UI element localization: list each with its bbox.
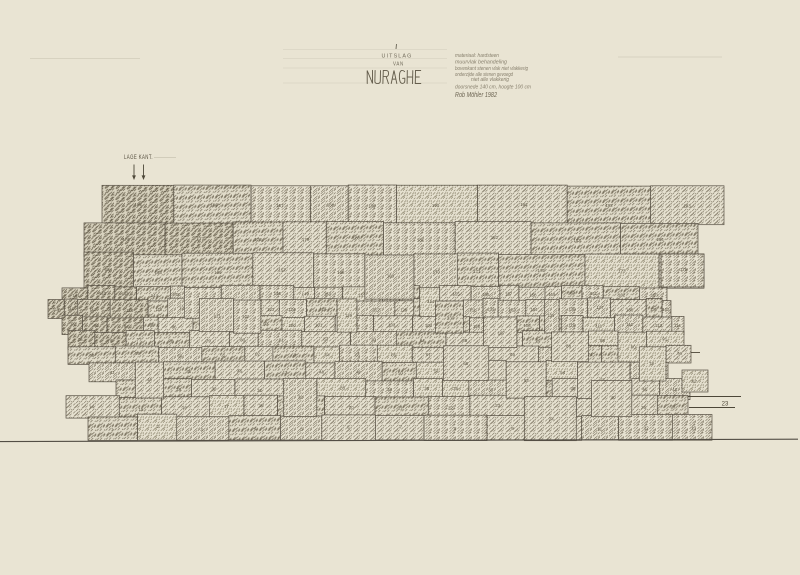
svg-text:83: 83 [371, 338, 376, 343]
svg-text:150: 150 [324, 292, 332, 297]
svg-text:65: 65 [355, 352, 360, 357]
svg-text:89: 89 [600, 338, 605, 343]
svg-text:82: 82 [323, 337, 328, 342]
svg-text:67: 67 [426, 352, 431, 357]
svg-text:75: 75 [78, 337, 83, 342]
svg-text:115: 115 [53, 307, 60, 312]
svg-text:60: 60 [177, 354, 182, 359]
svg-text:144: 144 [151, 293, 159, 298]
svg-text:166: 166 [214, 270, 222, 275]
svg-text:101: 101 [315, 322, 323, 327]
svg-text:104: 104 [425, 323, 433, 328]
svg-text:niet alle vlakkerig: niet alle vlakkerig [471, 77, 509, 83]
svg-text:113: 113 [655, 323, 663, 328]
svg-text:170: 170 [433, 270, 441, 275]
svg-text:15: 15 [139, 407, 144, 412]
svg-text:182: 182 [491, 235, 499, 240]
svg-text:76: 76 [108, 338, 113, 343]
svg-text:172: 172 [538, 268, 546, 273]
svg-text:16: 16 [182, 405, 187, 410]
svg-text:168: 168 [337, 270, 345, 275]
svg-text:173: 173 [618, 269, 626, 274]
svg-text:36: 36 [453, 386, 458, 391]
svg-text:116: 116 [67, 306, 74, 311]
svg-text:90: 90 [631, 345, 636, 350]
svg-text:126: 126 [345, 313, 353, 318]
svg-text:30: 30 [212, 387, 217, 392]
svg-text:185: 185 [134, 202, 142, 207]
svg-text:161: 161 [590, 291, 598, 296]
svg-text:73: 73 [649, 361, 654, 366]
svg-text:130: 130 [447, 315, 455, 320]
svg-text:31: 31 [257, 388, 262, 393]
svg-text:74: 74 [677, 351, 682, 356]
svg-text:156: 156 [482, 292, 490, 297]
svg-text:32: 32 [298, 394, 303, 399]
svg-text:183: 183 [573, 238, 581, 243]
svg-text:106: 106 [473, 324, 481, 329]
svg-text:doorsnede 140 cm, hoogte 100 c: doorsnede 140 cm, hoogte 100 cm [455, 85, 532, 91]
svg-text:103: 103 [388, 323, 396, 328]
svg-text:142: 142 [99, 291, 107, 296]
svg-text:131: 131 [469, 308, 477, 313]
svg-text:136: 136 [568, 307, 576, 312]
svg-text:Rob Möhler 1982: Rob Möhler 1982 [455, 92, 497, 99]
svg-text:47: 47 [282, 370, 287, 375]
svg-text:63: 63 [291, 353, 296, 358]
svg-text:77: 77 [137, 338, 142, 343]
svg-text:23: 23 [495, 403, 500, 408]
svg-text:68: 68 [463, 361, 468, 366]
svg-text:66: 66 [391, 352, 396, 357]
svg-text:53: 53 [524, 378, 529, 383]
svg-text:187: 187 [276, 203, 284, 208]
svg-text:26: 26 [641, 405, 646, 410]
svg-text:50: 50 [398, 370, 403, 375]
svg-text:64: 64 [325, 353, 330, 358]
svg-text:muurvlak behandeling: muurvlak behandeling [455, 60, 507, 66]
svg-text:165: 165 [155, 270, 163, 275]
svg-text:UITSLAG: UITSLAG [382, 54, 413, 60]
svg-text:44: 44 [147, 377, 152, 382]
svg-text:14: 14 [89, 405, 94, 410]
svg-text:13: 13 [691, 426, 696, 431]
svg-text:160: 160 [568, 291, 576, 296]
svg-text:180: 180 [353, 235, 361, 240]
svg-text:176: 176 [122, 237, 130, 242]
svg-text:80: 80 [240, 337, 245, 342]
svg-text:163: 163 [651, 293, 659, 298]
svg-text:12: 12 [644, 425, 649, 430]
svg-text:169: 169 [387, 274, 395, 279]
svg-text:23: 23 [722, 402, 729, 408]
svg-text:81: 81 [279, 338, 284, 343]
svg-text:96: 96 [172, 324, 177, 329]
svg-text:114: 114 [674, 323, 681, 328]
svg-text:158: 158 [529, 293, 537, 298]
svg-text:155: 155 [452, 292, 460, 297]
svg-text:62: 62 [255, 351, 260, 356]
svg-text:164: 164 [105, 267, 113, 272]
svg-text:127: 127 [373, 307, 381, 312]
svg-text:145: 145 [173, 292, 181, 297]
svg-text:18: 18 [259, 403, 264, 408]
svg-text:140: 140 [662, 307, 670, 312]
svg-text:79: 79 [206, 339, 211, 344]
svg-text:124: 124 [288, 307, 296, 312]
svg-text:193: 193 [683, 204, 691, 209]
svg-text:35: 35 [424, 386, 429, 391]
svg-text:27: 27 [671, 405, 676, 410]
svg-text:17: 17 [224, 404, 229, 409]
svg-text:119: 119 [156, 307, 163, 312]
svg-text:24: 24 [549, 416, 554, 421]
svg-text:41: 41 [642, 387, 647, 392]
svg-text:123: 123 [267, 307, 275, 312]
svg-text:93: 93 [94, 323, 99, 328]
svg-text:39: 39 [571, 386, 576, 391]
svg-text:110: 110 [568, 322, 576, 327]
svg-text:37: 37 [488, 388, 493, 393]
svg-text:167: 167 [278, 267, 286, 272]
svg-text:143: 143 [121, 292, 129, 297]
svg-text:107: 107 [498, 330, 506, 335]
svg-text:51: 51 [434, 369, 439, 374]
svg-text:95: 95 [150, 322, 155, 327]
svg-text:40: 40 [611, 395, 616, 400]
svg-text:108: 108 [523, 323, 531, 328]
svg-text:125: 125 [319, 307, 327, 312]
svg-text:33: 33 [340, 386, 345, 391]
svg-text:137: 137 [597, 305, 605, 310]
svg-text:175: 175 [680, 267, 688, 272]
svg-text:94: 94 [124, 324, 129, 329]
svg-text:43: 43 [110, 370, 115, 375]
svg-text:138: 138 [626, 308, 634, 313]
svg-text:133: 133 [509, 307, 517, 312]
svg-text:128: 128 [400, 308, 408, 313]
svg-text:189: 189 [368, 204, 376, 209]
svg-text:112: 112 [626, 322, 634, 327]
svg-text:78: 78 [168, 338, 173, 343]
svg-text:21: 21 [398, 406, 403, 411]
svg-text:162: 162 [618, 292, 626, 297]
svg-text:100: 100 [289, 323, 297, 328]
svg-text:54: 54 [560, 370, 565, 375]
svg-text:99: 99 [263, 321, 268, 326]
svg-text:122: 122 [242, 314, 250, 319]
svg-text:85: 85 [462, 338, 467, 343]
svg-text:139: 139 [650, 307, 658, 312]
svg-text:49: 49 [356, 369, 361, 374]
svg-text:154: 154 [427, 299, 435, 304]
svg-text:69: 69 [510, 352, 515, 357]
svg-text:149: 149 [302, 292, 310, 297]
svg-text:materiaal: hardsteen: materiaal: hardsteen [455, 53, 499, 59]
svg-text:88: 88 [566, 344, 571, 349]
svg-text:61: 61 [220, 353, 225, 358]
svg-text:57: 57 [692, 379, 697, 384]
svg-text:190: 190 [432, 203, 440, 208]
svg-text:84: 84 [420, 338, 425, 343]
svg-text:91: 91 [662, 336, 667, 341]
svg-text:117: 117 [90, 308, 98, 313]
svg-text:VAN: VAN [393, 62, 404, 68]
svg-text:11: 11 [598, 426, 603, 431]
svg-text:188: 188 [327, 203, 335, 208]
svg-text:157: 157 [505, 292, 513, 297]
svg-text:58: 58 [89, 353, 94, 358]
svg-text:186: 186 [210, 203, 218, 208]
svg-text:118: 118 [126, 308, 134, 313]
svg-text:87: 87 [536, 338, 541, 343]
svg-text:159: 159 [548, 292, 556, 297]
svg-text:181: 181 [417, 237, 425, 242]
svg-text:177: 177 [197, 237, 205, 242]
svg-text:135: 135 [547, 313, 555, 318]
svg-text:134: 134 [531, 307, 539, 312]
svg-text:45: 45 [186, 369, 191, 374]
svg-text:42: 42 [672, 387, 677, 392]
svg-text:34: 34 [387, 387, 392, 392]
svg-text:192: 192 [605, 203, 613, 208]
svg-text:92: 92 [71, 322, 76, 327]
svg-text:178: 178 [254, 237, 262, 242]
svg-text:179: 179 [302, 237, 310, 242]
svg-text:148: 148 [274, 291, 282, 296]
svg-text:46: 46 [237, 368, 242, 373]
svg-text:121: 121 [214, 313, 222, 318]
svg-text:132: 132 [488, 307, 496, 312]
svg-text:184: 184 [656, 237, 664, 242]
svg-text:48: 48 [319, 369, 324, 374]
svg-text:29: 29 [176, 387, 181, 392]
svg-text:111: 111 [595, 323, 602, 328]
svg-text:171: 171 [473, 269, 481, 274]
svg-text:LAGE KANT.: LAGE KANT. [124, 154, 153, 161]
svg-text:191: 191 [520, 202, 528, 207]
svg-text:22: 22 [448, 405, 453, 410]
svg-text:59: 59 [135, 351, 140, 356]
svg-text:20: 20 [349, 405, 354, 410]
svg-text:141: 141 [72, 293, 80, 298]
